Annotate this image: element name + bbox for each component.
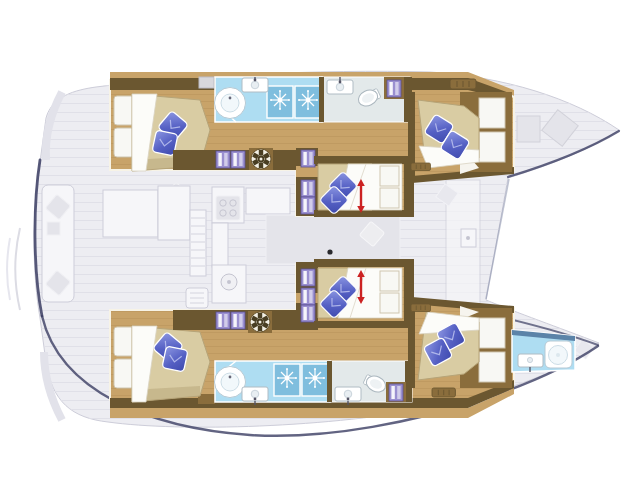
galley-appliance	[186, 288, 208, 308]
saloon-seating-area	[266, 215, 400, 264]
closet-door	[380, 188, 399, 208]
closet-door	[380, 271, 399, 291]
shower-jet-icon	[295, 86, 321, 118]
pillow-icon	[162, 346, 188, 372]
windlass	[461, 229, 476, 247]
towel-icon	[231, 151, 245, 168]
swim-platform-line	[7, 238, 10, 300]
starboard-bow-bathroom	[512, 330, 575, 372]
headboard-panel	[114, 128, 134, 157]
galley-sink	[212, 265, 246, 303]
companionway-steps	[190, 210, 206, 276]
yacht-floorplan-svg	[0, 0, 640, 480]
wc-wall	[327, 361, 332, 402]
towel-icon	[387, 80, 401, 97]
closet-door	[380, 166, 399, 186]
mast-step	[327, 249, 332, 254]
cabin-wall	[314, 321, 414, 328]
sink-icon	[242, 78, 268, 92]
shower-jet-icon	[302, 364, 328, 396]
nav-desk	[246, 188, 290, 214]
sink-icon	[242, 387, 268, 401]
saloon-table	[103, 190, 158, 237]
deck-hatch	[199, 77, 214, 88]
swim-platform-line	[16, 228, 21, 310]
vent-icon	[450, 79, 476, 89]
towel-icon	[389, 384, 403, 401]
starboard-shower-room	[215, 361, 331, 405]
towel-icon	[301, 288, 315, 305]
towel-icon	[301, 305, 315, 322]
vent-icon	[432, 388, 455, 397]
cabin-wall	[314, 259, 414, 267]
cabin-entry-gap	[296, 166, 318, 177]
port-inboard-band	[173, 148, 310, 170]
shower-jet-icon	[274, 364, 300, 396]
towel-icon	[301, 150, 315, 167]
cockpit-item	[47, 222, 60, 235]
vent-icon	[411, 304, 431, 312]
vent-wheel-icon	[251, 149, 271, 169]
bow-hatch	[517, 116, 540, 142]
headboard-panel	[114, 96, 134, 125]
starboard-wc	[327, 361, 412, 405]
sink-icon	[327, 80, 353, 94]
round-shower-icon	[215, 88, 246, 119]
towel-icon	[216, 151, 230, 168]
starboard-inboard-band	[173, 310, 310, 333]
cabin-wall	[314, 156, 414, 164]
cabin-wall	[314, 210, 414, 217]
closet-door	[479, 318, 505, 348]
vent-icon	[411, 163, 431, 171]
yacht-floorplan-image	[0, 0, 640, 480]
port-wc	[319, 77, 412, 122]
closet-door	[479, 352, 505, 382]
closet-door	[479, 132, 505, 162]
closet-door	[479, 98, 505, 128]
sink-icon	[335, 387, 361, 401]
round-shower-icon	[215, 367, 246, 398]
port-forward-cabin	[408, 92, 514, 183]
headboard-panel	[114, 359, 134, 388]
closet-door	[380, 293, 399, 313]
towel-icon	[231, 312, 245, 329]
shower-jet-icon	[267, 86, 293, 118]
towel-icon	[301, 197, 315, 214]
galley-counter	[212, 223, 228, 267]
cabin-wall	[408, 300, 415, 388]
port-shower-room	[215, 77, 323, 122]
saloon-sofa	[158, 186, 190, 240]
bow-shower	[545, 341, 572, 368]
towel-icon	[216, 312, 230, 329]
towel-icon	[301, 269, 315, 286]
galley-stove	[216, 196, 240, 220]
headboard-panel	[114, 327, 134, 356]
port-mid-cabin	[296, 148, 414, 217]
towel-icon	[301, 180, 315, 197]
vent-wheel-icon	[250, 312, 270, 332]
wc-wall	[319, 77, 324, 122]
